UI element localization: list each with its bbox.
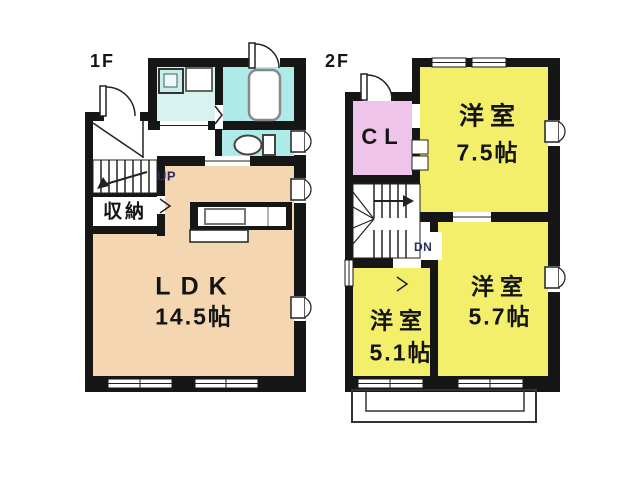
stairs-down-label: DN — [414, 241, 432, 253]
room-7-5-name: 洋室 — [459, 105, 521, 130]
stairs-down — [353, 184, 420, 258]
window-2f-left — [345, 260, 353, 286]
storage-label: 収納 — [103, 203, 147, 222]
floor2-label: 2F — [325, 52, 350, 70]
room-5-7-size: 5.7帖 — [469, 306, 532, 329]
room-5-1-size: 5.1帖 — [370, 342, 433, 365]
room-5-7-name: 洋室 — [471, 276, 529, 299]
stairs-up-label: UP — [157, 170, 176, 183]
window-2f-top-right — [472, 58, 506, 67]
ldk-size: 14.5帖 — [155, 306, 233, 329]
ldk-name: LDK — [155, 275, 236, 300]
window-2f-top-left — [432, 58, 466, 67]
room-5-1-name: 洋室 — [370, 310, 428, 333]
bathtub — [249, 70, 280, 120]
window-1f-bottom-right — [195, 379, 258, 388]
window-2f-bottom-left — [358, 379, 423, 388]
entrance-step — [93, 121, 143, 158]
stairs-up — [93, 160, 157, 193]
bathroom-exterior-door-arc — [249, 43, 279, 68]
kitchen-sink — [205, 209, 245, 224]
room-7-5-size: 7.5帖 — [457, 142, 520, 165]
closet-hall-door-arc — [361, 74, 392, 100]
vanity-sink — [159, 69, 183, 93]
floor2-plan — [345, 58, 565, 422]
balcony — [352, 390, 536, 422]
floorplan-drawing — [0, 0, 640, 480]
toilet — [235, 135, 276, 155]
floorplan-image: 1F 収納 UP LDK 14.5帖 2F CL DN 洋室 7.5帖 洋室 5… — [0, 0, 640, 480]
window-2f-bottom-right — [458, 379, 523, 388]
washing-machine — [186, 68, 212, 91]
window-1f-bottom-left — [108, 379, 172, 388]
floor1-label: 1F — [90, 52, 115, 70]
bathroom-folding-door — [215, 105, 223, 129]
entrance-door-arc — [100, 86, 135, 116]
closet-label: CL — [361, 126, 404, 148]
